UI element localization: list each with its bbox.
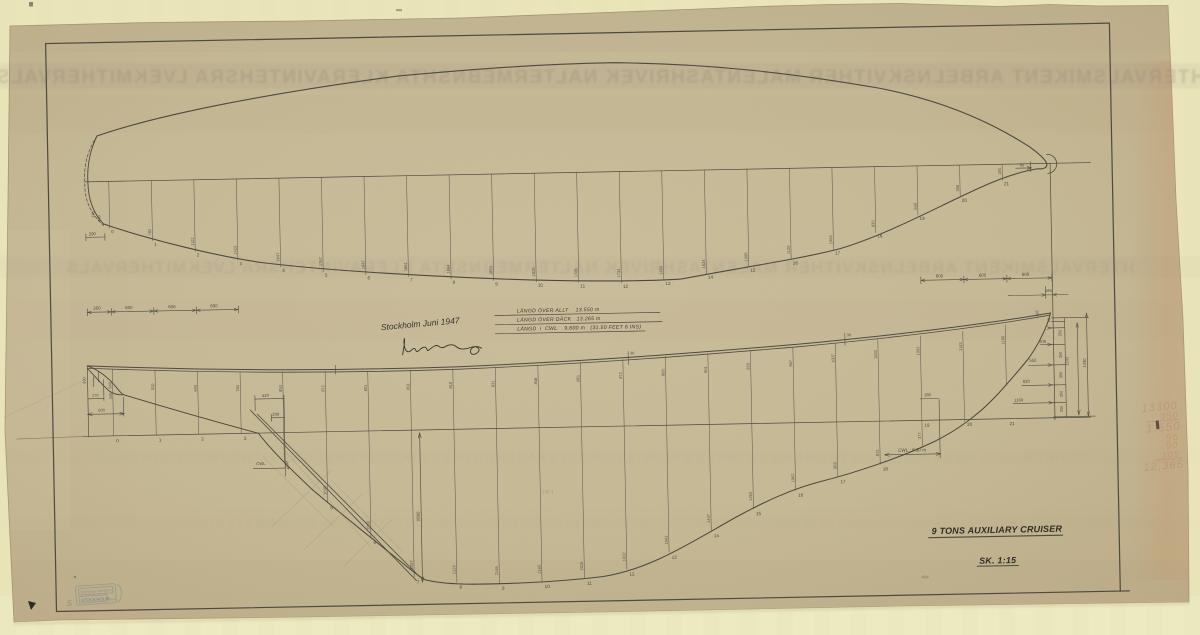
svg-text:13: 13 [672,555,678,560]
svg-text:420: 420 [262,393,270,398]
svg-text:16: 16 [798,493,804,498]
svg-text:10: 10 [538,283,544,288]
svg-text:350: 350 [1059,352,1063,358]
svg-text:1120: 1120 [786,245,791,254]
svg-text:308: 308 [1039,339,1047,344]
svg-text:600: 600 [168,304,176,309]
svg-text:21: 21 [1010,421,1016,426]
svg-text:1922: 1922 [621,552,626,562]
svg-text:859: 859 [832,461,837,469]
svg-text:1143: 1143 [958,341,963,350]
svg-text:1861: 1861 [403,261,408,271]
svg-text:15: 15 [750,268,756,273]
svg-text:14: 14 [708,275,714,280]
svg-text:2160: 2160 [536,564,541,574]
svg-text:1062: 1062 [790,473,795,483]
svg-text:780: 780 [235,384,240,392]
svg-text:12: 12 [629,572,635,577]
svg-text:440: 440 [108,392,113,400]
svg-text:18: 18 [877,233,883,238]
svg-text:600: 600 [125,305,133,310]
svg-text:552: 552 [1029,358,1037,363]
svg-text:1263: 1263 [748,491,753,501]
svg-text:350: 350 [1059,391,1063,397]
svg-text:848: 848 [533,377,538,385]
svg-text:660: 660 [193,384,198,392]
svg-text:1160: 1160 [1014,397,1024,402]
svg-text:165: 165 [1035,310,1039,316]
svg-text:831: 831 [363,384,368,392]
svg-text:130: 130 [91,211,95,217]
svg-text:SK. 1:15: SK. 1:15 [979,555,1016,566]
svg-text:18: 18 [883,466,889,471]
svg-text:2057: 2057 [409,559,414,569]
svg-text:1W 1: 1W 1 [542,489,554,495]
svg-text:1656: 1656 [658,265,663,275]
svg-text:HTERVALSMIKENT ARBELNSKVITHER: HTERVALSMIKENT ARBELNSKVITHER MALENTASHR… [65,258,1134,277]
svg-text:600: 600 [936,273,944,278]
svg-text:1850: 1850 [488,265,493,275]
svg-text:967: 967 [788,359,793,367]
svg-text:340: 340 [107,381,112,389]
svg-text:600: 600 [210,303,218,308]
svg-text:572: 572 [875,449,880,457]
svg-text:820: 820 [1023,379,1031,384]
svg-text:350: 350 [1059,372,1063,378]
svg-text:16: 16 [793,260,799,265]
svg-text:850: 850 [278,384,283,392]
svg-text:1092: 1092 [915,346,920,356]
svg-text:1190: 1190 [1000,335,1005,344]
svg-text:1007: 1007 [830,353,835,363]
svg-text:CWL: CWL [256,461,266,466]
svg-text:10: 10 [545,584,551,589]
svg-text:13: 13 [665,281,671,286]
svg-text:12: 12 [623,284,629,289]
svg-text:861: 861 [575,374,580,382]
svg-text:1826: 1826 [531,267,536,277]
svg-text:17: 17 [835,251,841,256]
svg-text:1423: 1423 [232,245,237,255]
svg-text:30: 30 [847,333,851,337]
svg-text:HTERVALSMIKENT ARBELNSKVITHER: HTERVALSMIKENT ARBELNSKVITHER MALENTASHR… [0,67,1200,88]
svg-text:600: 600 [1022,272,1030,277]
svg-text:1242: 1242 [1064,356,1069,366]
svg-text:377: 377 [917,432,922,440]
svg-text:883: 883 [660,368,665,376]
svg-text:600: 600 [912,202,917,210]
svg-text:1864: 1864 [446,264,451,274]
svg-text:831: 831 [490,380,495,388]
svg-text:2149: 2149 [494,566,499,576]
svg-text:520: 520 [150,383,155,391]
svg-text:90: 90 [1047,318,1051,322]
svg-text:358: 358 [955,184,960,192]
svg-text:872: 872 [618,371,623,379]
svg-text:1786: 1786 [573,267,578,277]
svg-text:20: 20 [967,422,973,427]
svg-text:2124: 2124 [451,565,456,575]
svg-text:180: 180 [997,167,1002,175]
svg-text:1430: 1430 [1082,358,1087,368]
svg-text:933: 933 [745,362,750,370]
svg-text:20: 20 [962,198,968,203]
svg-text:11: 11 [587,581,592,586]
svg-text:2026: 2026 [579,561,584,571]
svg-text:17: 17 [840,479,846,484]
svg-text:500: 500 [98,408,106,413]
svg-text:1767: 1767 [318,256,323,266]
svg-text:1663: 1663 [664,535,669,545]
svg-text:1043: 1043 [873,349,878,359]
svg-text:1004: 1004 [828,235,833,245]
svg-text:170: 170 [92,393,100,398]
svg-text:Sthlm: Sthlm [109,597,117,602]
svg-text:1122: 1122 [190,237,195,246]
svg-text:CWL : 8.60 m: CWL : 8.60 m [898,447,926,453]
svg-text:19: 19 [919,216,925,221]
svg-text:801: 801 [405,382,410,390]
svg-text:350: 350 [93,306,101,311]
svg-text:1647: 1647 [275,252,280,262]
svg-text:1524: 1524 [701,259,706,269]
svg-text:15: 15 [756,511,762,516]
svg-text:250: 250 [1060,406,1064,412]
svg-text:1847: 1847 [360,259,365,269]
svg-text:100: 100 [97,215,101,221]
svg-text:14: 14 [714,533,720,538]
svg-text:1306: 1306 [743,252,748,262]
svg-text:130: 130 [284,460,289,468]
svg-text:11: 11 [580,283,585,288]
svg-text:1734: 1734 [616,268,621,278]
svg-text:818: 818 [448,381,453,389]
svg-text:830: 830 [870,220,875,228]
svg-text:1447: 1447 [706,513,711,523]
svg-text:21: 21 [1004,181,1010,186]
svg-text:901: 901 [703,365,708,373]
svg-text:2030: 2030 [365,520,370,530]
svg-text:19: 19 [924,423,930,428]
svg-text:2080: 2080 [416,511,421,522]
svg-text:872: 872 [320,384,325,392]
svg-text:290: 290 [89,231,97,236]
svg-text:200: 200 [272,412,280,417]
svg-text:600: 600 [979,273,987,278]
svg-text:165: 165 [1045,288,1053,293]
svg-text:782: 782 [147,228,152,236]
svg-text:180: 180 [924,392,932,397]
svg-text:30: 30 [630,351,634,355]
svg-text:250: 250 [1058,330,1062,336]
svg-text:INHEKMALTENBSHRIVEKNALTERMEBNS: INHEKMALTENBSHRIVEKNALTERMEBNSHTAKLERAVI… [177,516,1023,530]
